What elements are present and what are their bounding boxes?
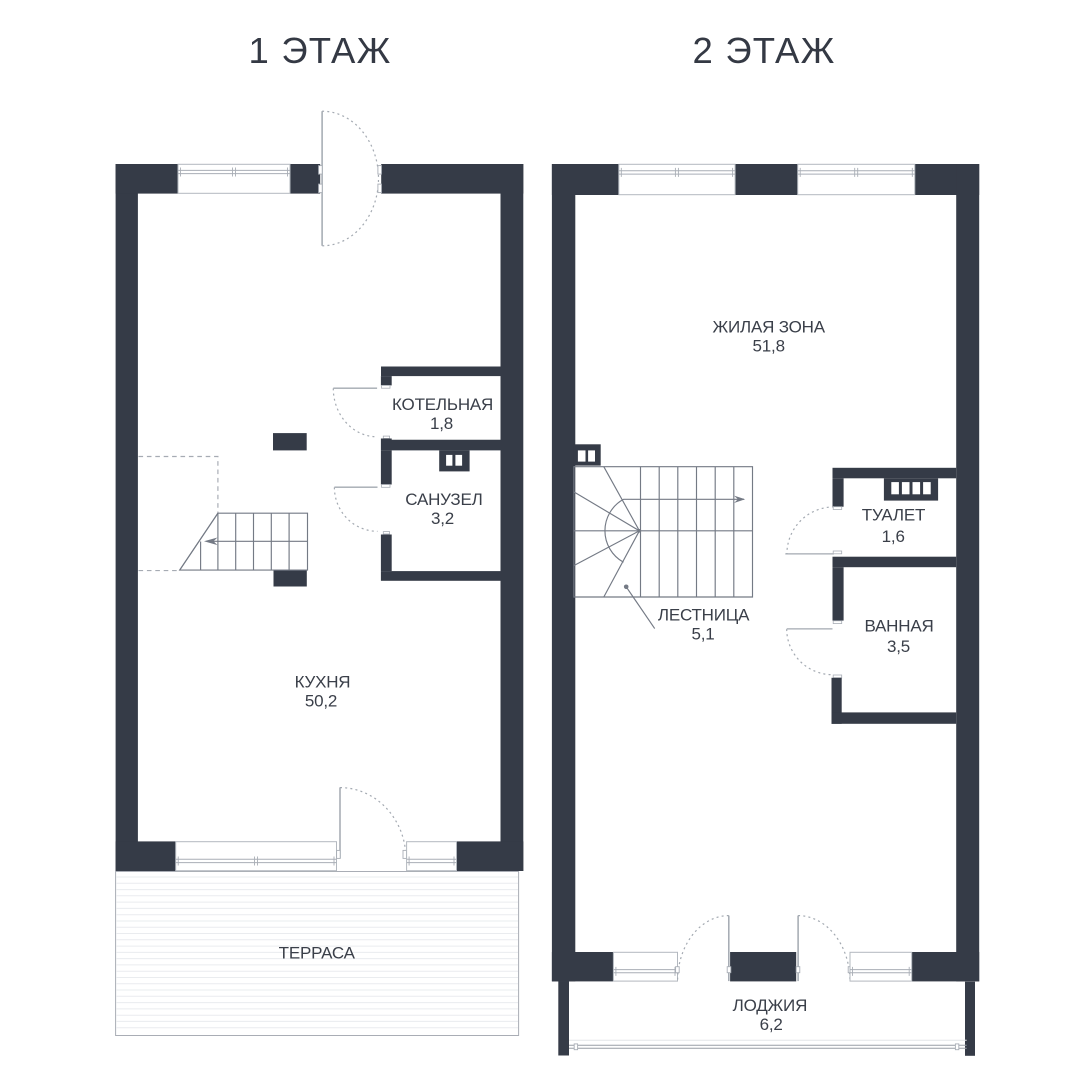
svg-text:51,8: 51,8 [753,337,785,356]
svg-text:ЖИЛАЯ ЗОНА: ЖИЛАЯ ЗОНА [713,318,826,337]
svg-text:50,2: 50,2 [305,692,337,711]
svg-text:ЛОДЖИЯ: ЛОДЖИЯ [733,996,808,1015]
svg-text:5,1: 5,1 [691,625,714,644]
svg-text:КУХНЯ: КУХНЯ [295,673,351,692]
svg-text:2 ЭТАЖ: 2 ЭТАЖ [692,30,835,71]
svg-text:1 ЭТАЖ: 1 ЭТАЖ [248,30,391,71]
svg-text:1,6: 1,6 [882,527,905,546]
svg-text:3,5: 3,5 [887,637,910,656]
svg-text:3,2: 3,2 [431,509,454,528]
svg-text:ВАННАЯ: ВАННАЯ [864,617,933,636]
svg-text:ТЕРРАСА: ТЕРРАСА [279,944,356,963]
svg-text:САНУЗЕЛ: САНУЗЕЛ [405,490,482,509]
svg-text:6,2: 6,2 [760,1015,783,1034]
svg-text:ЛЕСТНИЦА: ЛЕСТНИЦА [658,606,750,625]
svg-text:КОТЕЛЬНАЯ: КОТЕЛЬНАЯ [392,395,493,414]
svg-text:ТУАЛЕТ: ТУАЛЕТ [862,506,925,525]
svg-text:1,8: 1,8 [430,414,453,433]
